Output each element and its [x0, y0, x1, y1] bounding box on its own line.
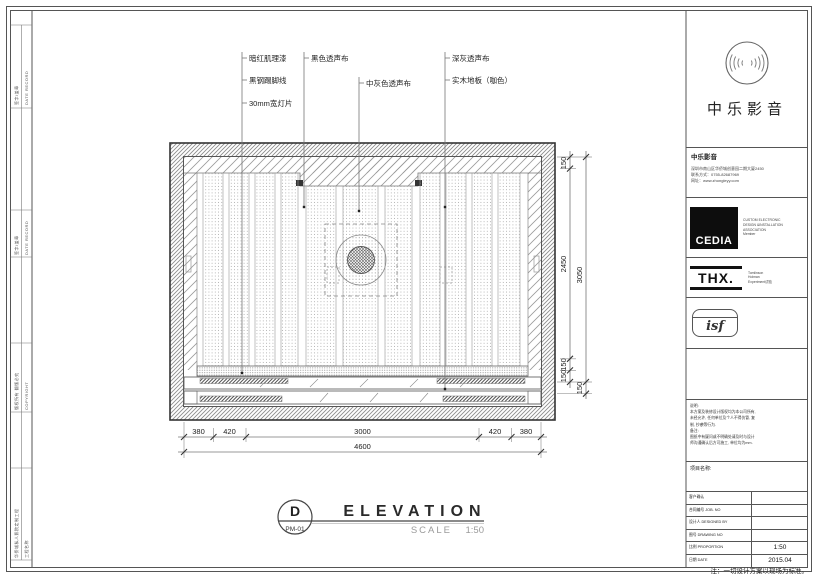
- right-dimensions: 150 2450 150 150 3050 150: [557, 151, 592, 399]
- dim-380-right: 380: [520, 427, 533, 436]
- sheet-footnote: 注：一切设计方案以现场为标准。: [560, 565, 808, 575]
- row-label: 图号 DRAWING NO: [686, 530, 752, 542]
- callout-darkgray-cloth: 深灰透声布: [452, 53, 490, 63]
- row-label: 比例 PROPORTION: [686, 542, 752, 554]
- company-info-section: 中乐影音 深圳市南山区华侨城创意园二期大厦2450 联系方式：0755-8268…: [686, 148, 808, 198]
- table-row: 设计人 DESIGNED BY: [686, 517, 808, 530]
- thx-section: THX. Tomlinson Holman Experiment试验: [686, 258, 808, 298]
- info-table: 客户确认 合同编号 JOB. NO 设计人 DESIGNED BY 图号 DRA…: [686, 492, 808, 567]
- left-strip-sublabel-1: DATE RECORD: [24, 71, 29, 105]
- dim-4600: 4600: [354, 442, 371, 451]
- title-letter: D: [290, 503, 300, 519]
- row-value: [752, 505, 808, 517]
- company-name: 中乐影音: [691, 151, 803, 161]
- project-name-section: 项目名称:: [686, 462, 808, 492]
- row-value: 1:50: [752, 542, 808, 554]
- table-row: 客户确认: [686, 492, 808, 505]
- title-scale-value: 1:50: [466, 525, 485, 536]
- left-strip-label-2: 签字/盖章: [14, 235, 20, 255]
- thx-logo: THX.: [690, 266, 742, 290]
- left-strip-sublabel-3: COPYRIGHT: [24, 382, 29, 410]
- callout-black-cloth: 黑色透声布: [311, 53, 349, 63]
- dim-150-mid: 150: [559, 358, 568, 371]
- callout-skirting: 黑钢踢脚线: [249, 75, 287, 85]
- row-value: [752, 492, 808, 504]
- room-elevation: [170, 143, 555, 420]
- left-strip-sublabel-4: 工程名称: [24, 540, 30, 558]
- note-line: 师沟通确认后方可施工, 单位均为mm.: [690, 440, 804, 446]
- row-label: 合同编号 JOB. NO: [686, 505, 752, 517]
- isf-logo: isf: [692, 309, 738, 337]
- dim-150-low: 150: [559, 370, 568, 383]
- floor-layers: [184, 366, 541, 404]
- left-strip-sublabel-2: DATE RECORD: [24, 221, 29, 255]
- drawing-title: D PM-01 ELEVATION SCALE 1:50: [278, 500, 487, 536]
- callout-lamp: 30mm宽灯片: [249, 98, 292, 108]
- table-row: 比例 PROPORTION 1:50: [686, 542, 808, 555]
- company-web: 网址：www.zhongleyy.com: [691, 178, 803, 184]
- brand-name: 中乐影音: [707, 98, 787, 119]
- cedia-line: DESIGN &INSTALLATION: [743, 223, 783, 228]
- row-value: [752, 530, 808, 542]
- row-value: [752, 517, 808, 529]
- title-scale-label: SCALE: [411, 525, 452, 536]
- cedia-logo: CEDIA: [690, 207, 738, 249]
- left-strip-label-1: 签字/盖章: [14, 85, 20, 105]
- callout-paint: 暗红肌理漆: [249, 53, 287, 63]
- isf-section: isf: [686, 298, 808, 349]
- zhongle-logo-icon: [722, 38, 772, 88]
- empty-section: [686, 349, 808, 400]
- dim-3050: 3050: [575, 267, 584, 284]
- cedia-line: Member: [743, 232, 783, 237]
- thx-line: Experiment试验: [748, 280, 772, 285]
- dim-3000: 3000: [354, 427, 371, 436]
- dim-150-bottom: 150: [575, 382, 584, 395]
- brand-section: 中乐影音: [686, 10, 808, 148]
- dim-2450: 2450: [559, 256, 568, 273]
- title-code: PM-01: [285, 526, 305, 533]
- left-strip-label-3: 版权所有 翻版必究: [14, 372, 20, 410]
- row-label: 设计人 DESIGNED BY: [686, 517, 752, 529]
- dim-380-left: 380: [192, 427, 205, 436]
- isf-logo-text: isf: [706, 318, 724, 336]
- cedia-section: CEDIA CUSTOM ELECTRONIC DESIGN &INSTALLA…: [686, 198, 808, 258]
- row-label: 客户确认: [686, 492, 752, 504]
- dim-420-left: 420: [223, 427, 236, 436]
- dim-150-top: 150: [559, 157, 568, 170]
- notes-section: 说明: 本方案及装修设计版权均为本公司所有, 未经允许, 任何单位及个人不得仿冒…: [686, 400, 808, 462]
- bottom-dimensions: 380 420 3000 420 380 4600: [178, 422, 547, 458]
- left-strip-label-4: 华侨城私人影院定制工程: [14, 509, 20, 559]
- project-name-label: 项目名称:: [690, 466, 711, 472]
- dim-420-right: 420: [489, 427, 502, 436]
- title-name: ELEVATION: [343, 503, 486, 520]
- title-block: 中乐影音 中乐影音 深圳市南山区华侨城创意园二期大厦2450 联系方式：0755…: [686, 10, 808, 568]
- callout-gray-cloth: 中灰色透声布: [366, 78, 411, 88]
- table-row: 合同编号 JOB. NO: [686, 505, 808, 518]
- callout-floor: 实木地板（咖色）: [452, 75, 512, 85]
- table-row: 图号 DRAWING NO: [686, 530, 808, 543]
- drawing-sheet: 暗红肌理漆 黑钢踢脚线 30mm宽灯片 黑色透声布 中灰色透声布 深灰透声布 实…: [0, 0, 818, 578]
